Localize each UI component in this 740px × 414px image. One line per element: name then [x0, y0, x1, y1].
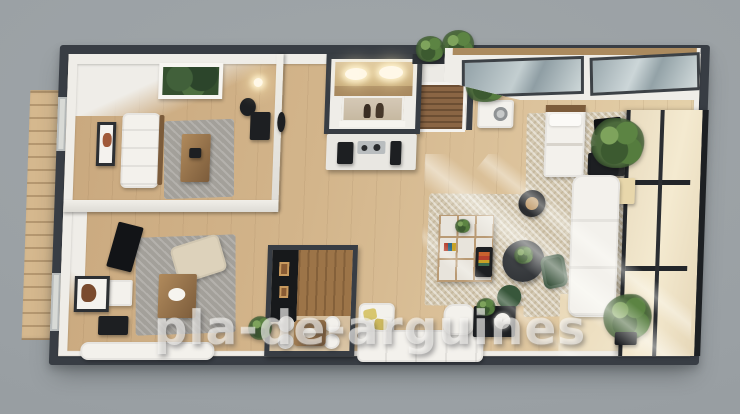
- skylight-glass: [590, 52, 701, 96]
- green-foliage: [162, 67, 219, 95]
- daybed-sofa: [568, 175, 621, 317]
- bed: [543, 105, 586, 177]
- vanity-mirror: [341, 96, 404, 122]
- pillow: [549, 114, 581, 126]
- wood-table-top: [525, 197, 538, 210]
- skylight-green-panel: [158, 63, 223, 99]
- burner: [373, 144, 380, 151]
- tile-wall: [334, 86, 412, 96]
- black-desk: [250, 112, 271, 140]
- art-motif: [81, 284, 97, 302]
- speaker-cabinet: [475, 247, 493, 277]
- watermark-text: pla-de-arguines: [0, 301, 740, 356]
- kitchen-counter: [326, 134, 417, 170]
- table-decor: [189, 148, 201, 158]
- vase-reflection: [375, 103, 384, 118]
- burner: [361, 145, 367, 151]
- books: [444, 243, 456, 251]
- wall-clock: [277, 112, 286, 132]
- cooktop: [357, 141, 385, 154]
- lounge-sofa: [120, 113, 161, 188]
- wall-lounge-bedroom: [63, 200, 278, 212]
- lounge-coffee-table: [180, 134, 211, 182]
- washer-door: [493, 107, 507, 121]
- art-motif: [102, 133, 111, 147]
- vase-reflection: [363, 104, 370, 118]
- ceiling-light: [379, 66, 403, 79]
- coffee-machine: [337, 142, 354, 164]
- ceiling-light: [345, 68, 367, 80]
- washer-unit: [477, 100, 514, 128]
- blanket-fold: [546, 143, 582, 146]
- render-stage: pla-de-arguines: [0, 0, 740, 414]
- kitchen-appliance: [390, 141, 402, 165]
- vanity-counter: [339, 121, 405, 127]
- bathroom-walls: [329, 59, 417, 129]
- bathroom-ceiling: [335, 62, 414, 86]
- mini-art: [279, 262, 289, 276]
- wall-art: [96, 122, 117, 166]
- headboard: [546, 105, 586, 112]
- table-plate: [168, 288, 185, 301]
- mini-art: [279, 286, 288, 298]
- shelf-plant: [454, 219, 470, 233]
- bathroom: [324, 54, 423, 134]
- speaker-label: [478, 252, 489, 266]
